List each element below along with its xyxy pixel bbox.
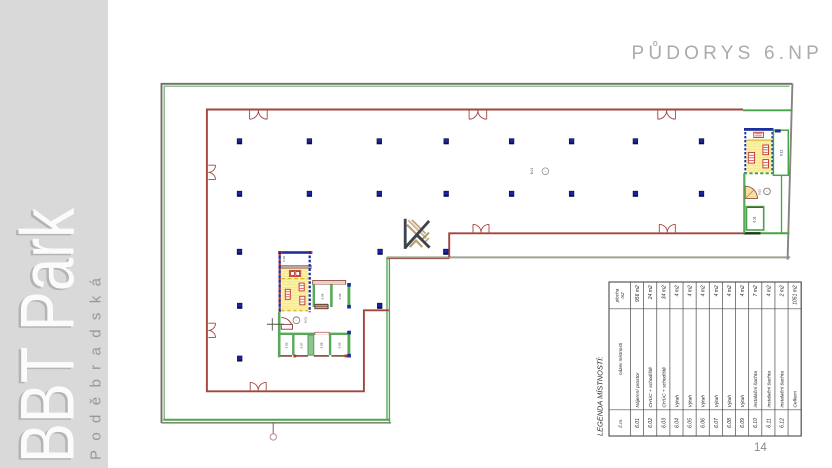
svg-text:LEGENDA MÍSTNOSTÍ:: LEGENDA MÍSTNOSTÍ: bbox=[596, 357, 605, 436]
svg-text:6.12: 6.12 bbox=[780, 418, 786, 428]
svg-text:↑: ↑ bbox=[295, 319, 299, 321]
svg-text:instalační šachta: instalační šachta bbox=[766, 371, 772, 408]
svg-text:Výtah: Výtah bbox=[675, 395, 681, 408]
svg-text:4 m2: 4 m2 bbox=[675, 285, 681, 296]
svg-text:Nájemní prostor: Nájemní prostor bbox=[635, 372, 641, 407]
svg-text:Výtah: Výtah bbox=[701, 395, 707, 408]
svg-text:Celkem: Celkem bbox=[793, 391, 799, 408]
svg-text:6.07: 6.07 bbox=[714, 418, 720, 428]
svg-text:6.11: 6.11 bbox=[753, 216, 757, 222]
svg-text:6.07: 6.07 bbox=[300, 342, 304, 348]
svg-text:6.02: 6.02 bbox=[758, 189, 762, 195]
svg-text:název místnosti: název místnosti bbox=[618, 342, 623, 375]
svg-text:6.10: 6.10 bbox=[753, 418, 759, 428]
svg-text:6.01: 6.01 bbox=[304, 317, 308, 323]
svg-text:6.06: 6.06 bbox=[701, 418, 707, 428]
svg-text:4 m2: 4 m2 bbox=[688, 285, 694, 296]
svg-text:24 m2: 24 m2 bbox=[648, 285, 654, 300]
svg-text:6.12: 6.12 bbox=[779, 149, 783, 155]
svg-text:Výtah: Výtah bbox=[727, 395, 733, 408]
svg-text:4 m2: 4 m2 bbox=[714, 285, 720, 296]
svg-text:CHÚC + schodiště: CHÚC + schodiště bbox=[660, 367, 667, 408]
svg-text:Výtah: Výtah bbox=[714, 395, 720, 408]
svg-text:4 m2: 4 m2 bbox=[766, 285, 772, 296]
svg-text:34 m2: 34 m2 bbox=[661, 285, 667, 299]
svg-text:Výtah: Výtah bbox=[740, 395, 746, 408]
svg-text:2 m2: 2 m2 bbox=[780, 285, 786, 297]
svg-text:6.05: 6.05 bbox=[338, 293, 342, 299]
svg-text:4 m2: 4 m2 bbox=[727, 285, 733, 296]
svg-text:m2: m2 bbox=[620, 292, 625, 299]
svg-text:6.09: 6.09 bbox=[338, 342, 342, 348]
svg-text:6.04: 6.04 bbox=[321, 293, 325, 299]
svg-text:4 m2: 4 m2 bbox=[701, 285, 707, 296]
svg-text:instalační šachta: instalační šachta bbox=[753, 371, 759, 408]
svg-text:956 m2: 956 m2 bbox=[635, 285, 641, 302]
svg-text:1051 m2: 1051 m2 bbox=[793, 285, 799, 305]
svg-text:instalační šachta: instalační šachta bbox=[780, 371, 786, 408]
svg-text:6.03: 6.03 bbox=[661, 418, 667, 428]
svg-text:6.11: 6.11 bbox=[766, 418, 772, 428]
svg-text:PŮDORYS 6.NP: PŮDORYS 6.NP bbox=[631, 42, 823, 64]
svg-text:6.04: 6.04 bbox=[675, 418, 681, 428]
svg-text:6.10: 6.10 bbox=[282, 256, 286, 262]
svg-text:Výtah: Výtah bbox=[688, 395, 694, 408]
svg-text:BBT Park: BBT Park bbox=[6, 207, 91, 463]
svg-text:6.06: 6.06 bbox=[284, 342, 288, 348]
svg-text:6.01: 6.01 bbox=[530, 168, 534, 175]
svg-text:6.09: 6.09 bbox=[740, 418, 746, 428]
svg-text:č.m.: č.m. bbox=[618, 418, 624, 427]
svg-text:6.08: 6.08 bbox=[727, 418, 733, 428]
svg-text:6.02: 6.02 bbox=[648, 418, 654, 428]
svg-text:plocha: plocha bbox=[615, 288, 620, 303]
svg-text:6.05: 6.05 bbox=[688, 418, 694, 428]
svg-text:CHÚC + schodiště: CHÚC + schodiště bbox=[647, 367, 654, 408]
svg-text:14: 14 bbox=[754, 442, 767, 454]
svg-text:6.01: 6.01 bbox=[635, 418, 641, 428]
svg-text:7 m2: 7 m2 bbox=[753, 285, 759, 296]
svg-text:4 m2: 4 m2 bbox=[740, 285, 746, 296]
svg-text:6.08: 6.08 bbox=[320, 342, 324, 348]
